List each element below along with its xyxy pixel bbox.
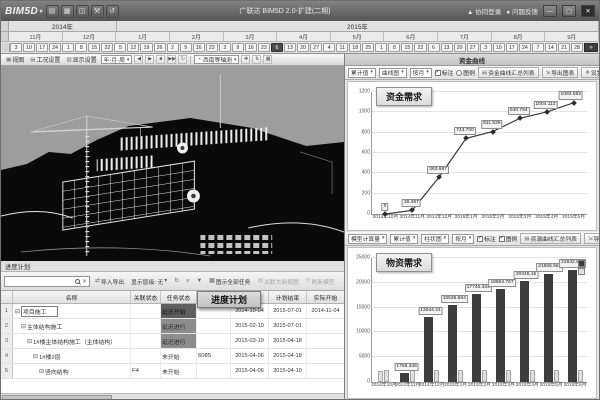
chevron-down-icon: ▾: [164, 278, 167, 284]
cell-link: [131, 319, 161, 333]
legend-swatch-period: [578, 268, 585, 275]
funds-line: [372, 92, 587, 214]
bar-group: [563, 258, 587, 382]
task-name-cell[interactable]: ⊟1#楼主体结构施工（主体结构）: [13, 334, 131, 348]
materials-select-value: 累计值: [393, 234, 410, 243]
bar-cumulative: [472, 294, 481, 382]
x-axis-label: 2015年4月: [535, 216, 558, 221]
timeline-day[interactable]: 1: [375, 43, 387, 52]
bar-group: [372, 258, 396, 382]
timeline-day[interactable]: 19: [140, 43, 152, 52]
date-cell-actual_start: [307, 334, 344, 348]
materials-button-label: 导出图表: [594, 234, 599, 243]
materials-button-1[interactable]: ⇲导出图表: [584, 233, 599, 244]
timeline-day[interactable]: 21: [558, 43, 570, 52]
schedule-button-icon: ▼: [196, 278, 202, 284]
clear-search-icon[interactable]: ✕: [82, 278, 87, 285]
time-scale-select[interactable]: 年-月-周▾: [101, 55, 133, 64]
timeline-month[interactable]: 11月: [9, 32, 63, 41]
bar-cumulative: [544, 274, 553, 382]
task-status-cell[interactable]: 延迟开始: [161, 304, 197, 318]
bar-value-label: 18664.767: [488, 279, 515, 287]
feedback-button[interactable]: ● 问题反馈: [506, 6, 538, 16]
viewer-extra-icons: ✥⇅▦: [241, 55, 272, 64]
playback-icon-4[interactable]: ↻: [178, 55, 187, 64]
y-axis-tick: 0: [367, 380, 370, 385]
schedule-toolbar-button-0[interactable]: ⇄导入导出: [93, 275, 126, 287]
task-status-cell[interactable]: 未开始: [161, 364, 197, 378]
materials-select-0[interactable]: 模型计算量▾: [348, 234, 387, 244]
timeline-day[interactable]: 10: [493, 43, 505, 52]
playback-controls: ◀▶■▶▶↻: [134, 55, 187, 64]
funds-button-icon: ⇲: [546, 70, 551, 76]
task-name-label: 竖向结构: [45, 367, 69, 376]
x-axis-label: 2015年4月: [516, 384, 539, 389]
viewer-button-label: 工况设置: [36, 55, 60, 64]
timeline-day[interactable]: 22: [101, 43, 113, 52]
date-cell-plan_start: 2015-04-06: [231, 364, 269, 378]
funds-toggle-0[interactable]: ✓标注: [435, 68, 454, 77]
schedule-button-icon: ↻: [174, 278, 179, 284]
cell-extra: 6085: [197, 349, 231, 363]
timeline-month[interactable]: 6月: [384, 32, 438, 41]
viewer-button-icon: ▦: [6, 57, 11, 63]
materials-select-3[interactable]: 按月▾: [452, 234, 474, 244]
chevron-down-icon: ▾: [469, 236, 471, 241]
data-point-label: 1004.113: [533, 101, 557, 109]
timeline-day[interactable]: 20: [297, 43, 309, 52]
chevron-down-icon: ▾: [234, 57, 237, 63]
titlebar-tool-icon-3[interactable]: ⚒: [91, 5, 104, 18]
schedule-panel: 进度计划 ✕ ⇄导入导出显示层级: 无▾↻≡▼▦图示全部任务▤关联大纲视图⟳刷新…: [1, 261, 344, 400]
timeline-day[interactable]: 17: [36, 43, 48, 52]
row-number-cell: 3: [1, 334, 13, 348]
viewer-extra-icon-2[interactable]: ▦: [263, 55, 272, 64]
funds-select-value: 曲线图: [382, 68, 399, 77]
table-row[interactable]: 5⊟竖向结构F4未开始2015-04-062015-04-10: [1, 364, 344, 379]
funds-toggle-1[interactable]: 图例: [456, 68, 475, 77]
timeline-stub: [1, 21, 9, 31]
x-axis-label: 2014年10月: [373, 216, 399, 221]
timeline-month[interactable]: 8月: [492, 32, 546, 41]
tree-expander-icon[interactable]: ⊟: [27, 338, 32, 345]
timeline-day[interactable]: 26: [154, 43, 166, 52]
x-axis-label: 2015年2月: [481, 216, 504, 221]
playback-icon-1[interactable]: ▶: [145, 55, 154, 64]
funds-button-2[interactable]: ✲设置: [581, 67, 599, 78]
bar-value-label: 15536.584: [441, 295, 468, 303]
timeline-day[interactable]: 13: [441, 43, 453, 52]
search-box: ✕: [4, 276, 90, 287]
materials-select-value: 模型计算量: [351, 234, 380, 243]
funds-demand-chart: 资金需求 0200400600800100012002014年10月2014年1…: [347, 81, 597, 231]
timeline-day[interactable]: 16: [193, 43, 205, 52]
schedule-toolbar-button-7: ⟳刷新模型: [304, 275, 337, 287]
chevron-down-icon: ▾: [382, 236, 384, 241]
radio-icon[interactable]: [456, 70, 462, 76]
materials-toggle-label: 图例: [506, 234, 518, 243]
schedule-button-label: 刷新模型: [312, 277, 335, 286]
x-axis-label: 2015年1月: [444, 384, 467, 389]
timeline-month[interactable]: 12月: [63, 32, 117, 41]
table-header-row: 名称关联状态任务状态计划开始计划结束实际开始: [1, 291, 344, 304]
checkbox-icon[interactable]: ✓: [435, 70, 441, 76]
date-cell-plan_end: 2015-07-01: [269, 319, 307, 333]
timeline-day[interactable]: 25: [362, 43, 374, 52]
funds-select-1[interactable]: 曲线图▾: [379, 68, 407, 78]
materials-button-label: 资源曲线汇总列表: [531, 234, 577, 243]
bar-period: [554, 370, 559, 382]
toolbar-divider: [190, 56, 191, 64]
task-name-label: 1#楼主体结构施工（主体结构）: [33, 337, 116, 346]
search-icon[interactable]: [75, 279, 80, 284]
timeline-months: 11月12月1月2月3月4月5月6月7月8月9月: [9, 32, 599, 41]
schedule-toolbar-buttons: ⇄导入导出显示层级: 无▾↻≡▼▦图示全部任务▤关联大纲视图⟳刷新模型: [93, 275, 337, 287]
x-axis-label: 2015年6月: [564, 384, 587, 389]
timeline-day[interactable]: 12: [127, 43, 139, 52]
viewer-extra-icon-0[interactable]: ✥: [241, 55, 250, 64]
timeline-day[interactable]: 27: [310, 43, 322, 52]
bar-cumulative: [424, 317, 433, 382]
funds-select-0[interactable]: 累计值▾: [348, 68, 376, 78]
playback-icon-2[interactable]: ■: [156, 55, 165, 64]
task-name-cell[interactable]: ⊟1#楼2层: [13, 349, 131, 363]
chart-title: 物资需求: [376, 253, 432, 272]
y-axis-tick: 25000: [356, 256, 370, 261]
compass-icon: ◔: [197, 57, 201, 63]
cell-link: [131, 304, 161, 318]
task-name-label: 1#楼2层: [39, 352, 61, 361]
horizontal-scrollbar[interactable]: [1, 393, 344, 400]
funds-button-icon: ✲: [585, 70, 590, 76]
task-name-cell[interactable]: ⊟项目施工: [13, 304, 131, 318]
bar-cumulative: [400, 373, 409, 382]
data-point-label: 743.700: [454, 127, 476, 135]
schedule-button-label: 导入导出: [101, 277, 124, 286]
schedule-button-icon: ▤: [257, 278, 262, 284]
curves-panel: 资金曲线 累计值▾曲线图▾按月▾✓标注图例▤资金曲线汇总列表⇲导出图表✲设置 资…: [345, 54, 599, 400]
schedule-button-label: 关联大纲视图: [264, 277, 299, 286]
x-axis-label: 2015年3月: [508, 216, 531, 221]
bar-group: [420, 258, 444, 382]
bar-cumulative: [520, 281, 529, 382]
date-cell-plan_end: 2015-04-10: [269, 364, 307, 378]
timeline-day[interactable]: 13: [284, 43, 296, 52]
timeline-day[interactable]: 16: [245, 43, 257, 52]
task-status-cell[interactable]: 延迟进行: [161, 319, 197, 333]
chevron-down-icon: ▾: [426, 70, 428, 75]
schedule-toolbar-button-4[interactable]: ▼: [194, 275, 204, 287]
y-axis-tick: 20000: [356, 280, 370, 285]
bar-cumulative: [378, 371, 383, 382]
x-axis-label: 2015年1月: [455, 216, 478, 221]
logo-caret-icon: ▾: [39, 8, 42, 15]
timeline-day[interactable]: 24: [519, 43, 531, 52]
row-number-cell: 1: [1, 304, 13, 318]
bar-period: [506, 370, 511, 382]
task-name-label: 项目施工: [21, 306, 58, 317]
y-axis-tick: 0: [367, 212, 370, 217]
x-axis-label: 2015年2月: [468, 384, 491, 389]
timeline-day[interactable]: 3: [480, 43, 492, 52]
titlebar-tool-icon-0[interactable]: ▤: [46, 5, 59, 18]
timeline-day[interactable]: 2: [167, 43, 179, 52]
tree-expander-icon[interactable]: ⊟: [39, 368, 44, 375]
funds-button-label: 导出图表: [551, 68, 574, 77]
task-status-cell[interactable]: 未开始: [161, 349, 197, 363]
timeline-day[interactable]: 11: [336, 43, 348, 52]
timeline-day[interactable]: 8: [75, 43, 87, 52]
materials-select-2[interactable]: 柱状图▾: [421, 234, 449, 244]
viewer-button-2[interactable]: ▥显示设置: [64, 55, 98, 65]
column-header-link[interactable]: 关联状态: [131, 291, 161, 303]
bar-cumulative: [448, 305, 457, 382]
timeline-day[interactable]: 7: [532, 43, 544, 52]
data-point-label: 1093.592: [559, 91, 583, 99]
bar-cumulative: [568, 270, 577, 382]
date-cell-actual_start: [307, 349, 344, 363]
row-number-cell: 5: [1, 364, 13, 378]
schedule-toolbar-button-3[interactable]: ≡: [184, 275, 191, 287]
date-cell-actual_start: [307, 364, 344, 378]
chevron-down-icon: ▾: [370, 70, 372, 75]
schedule-toolbar-button-1[interactable]: 显示层级: 无▾: [129, 275, 169, 287]
x-axis-label: 2015年5月: [540, 384, 563, 389]
tree-expander-icon[interactable]: ⊟: [15, 308, 20, 315]
materials-button-icon: ▤: [524, 236, 529, 242]
viewer-button-0[interactable]: ▦视图: [4, 55, 26, 65]
cell-link: [131, 349, 161, 363]
funds-toggle-label: 标注: [442, 68, 454, 77]
timeline-day[interactable]: 20: [454, 43, 466, 52]
chart-legend: [578, 260, 585, 275]
title-bar: BIM5D ▾ ▤▦◫⚒↺ 广联达 BIM5D 2.0-扩建(二期) ▲ 协同登…: [1, 1, 599, 21]
task-name-label: 主体结构施工: [27, 322, 62, 331]
column-header-no[interactable]: [1, 291, 13, 303]
table-row[interactable]: 3⊟1#楼主体结构施工（主体结构）延迟进行2015-03-192015-04-1…: [1, 334, 344, 349]
schedule-toolbar-button-2[interactable]: ↻: [172, 275, 181, 287]
cell-extra: [197, 364, 231, 378]
viewer-button-label: 显示设置: [73, 55, 97, 64]
x-axis-label: 2014年12月: [426, 216, 452, 221]
funds-toggle-label: 图例: [463, 68, 475, 77]
timeline-day[interactable]: 23: [258, 43, 270, 52]
cell-link: F4: [131, 364, 161, 378]
timeline-day[interactable]: 17: [506, 43, 518, 52]
materials-select-value: 按月: [455, 234, 467, 243]
close-button[interactable]: ✕: [581, 5, 595, 17]
schedule-button-icon: ≡: [186, 278, 189, 284]
bar-period: [410, 370, 415, 382]
timeline-day[interactable]: 1: [62, 43, 74, 52]
view-mode-value: 西南等轴测: [203, 55, 232, 64]
table-row[interactable]: 2⊟主体结构施工延迟进行2015-02-102015-07-01: [1, 319, 344, 334]
y-axis-tick: 1000: [359, 110, 370, 115]
bar-group: [444, 258, 468, 382]
app-logo[interactable]: BIM5D ▾: [5, 6, 43, 17]
chart-title: 资金需求: [376, 87, 432, 106]
column-header-plan_end[interactable]: 计划结束: [269, 291, 307, 303]
timeline-month[interactable]: 7月: [438, 32, 492, 41]
viewport-3d[interactable]: [1, 66, 344, 261]
timeline-day[interactable]: 18: [349, 43, 361, 52]
playback-icon-3[interactable]: ▶▶: [167, 55, 176, 64]
titlebar-tool-icon-1[interactable]: ▦: [61, 5, 74, 18]
row-number-cell: 2: [1, 319, 13, 333]
row-number-cell: 4: [1, 349, 13, 363]
schedule-toolbar-button-5[interactable]: ▦图示全部任务: [207, 275, 252, 287]
timeline-month[interactable]: 9月: [545, 32, 599, 41]
funds-select-value: 按月: [413, 68, 425, 77]
timeline-day[interactable]: 3: [10, 43, 22, 52]
date-cell-plan_end: 2015-04-18: [269, 349, 307, 363]
date-cell-plan_start: 2015-03-19: [231, 334, 269, 348]
materials-toolbar: 模型计算量▾累计值▾柱状图▾按月▾✓标注✓图例▤资源曲线汇总列表⇲导出图表: [345, 232, 599, 246]
timeline-day[interactable]: 6: [271, 43, 283, 52]
cell-link: [131, 334, 161, 348]
search-input[interactable]: [7, 278, 73, 284]
task-name-cell[interactable]: ⊟竖向结构: [13, 364, 131, 378]
date-cell-plan_end: 2015-07-01: [269, 304, 307, 318]
timeline-month[interactable]: 5月: [331, 32, 385, 41]
x-axis-label: 2014年11月: [395, 384, 420, 389]
materials-button-icon: ⇲: [588, 236, 593, 242]
data-point-label: 0: [382, 203, 389, 211]
materials-toggle-0[interactable]: ✓标注: [477, 234, 496, 243]
timeline-scroll-end[interactable]: »: [584, 43, 598, 52]
timeline-day[interactable]: 23: [206, 43, 218, 52]
chevron-down-icon: ▾: [401, 70, 403, 75]
y-axis-tick: 200: [362, 191, 370, 196]
materials-button-0[interactable]: ▤资源曲线汇总列表: [520, 233, 581, 244]
timeline-day[interactable]: 28: [571, 43, 583, 52]
bar-value-label: 1768.345: [394, 363, 418, 371]
cell-extra: [197, 334, 231, 348]
timeline-day[interactable]: 2: [219, 43, 231, 52]
timeline-years: 2014年2015年: [9, 21, 599, 31]
y-axis-tick: 1200: [359, 90, 370, 95]
materials-select-1[interactable]: 累计值▾: [390, 234, 418, 244]
timeline-day[interactable]: 5: [114, 43, 126, 52]
column-header-actual_start[interactable]: 实际开始: [307, 291, 344, 303]
x-axis-label: 2014年12月: [419, 384, 445, 389]
timeline-day[interactable]: 9: [232, 43, 244, 52]
timeline-day[interactable]: 22: [414, 43, 426, 52]
materials-select-value: 柱状图: [424, 234, 441, 243]
timeline-year: 2014年: [9, 21, 117, 31]
timeline-month[interactable]: 4月: [277, 32, 331, 41]
timeline-day[interactable]: 10: [23, 43, 35, 52]
data-point-label: 940.794: [508, 107, 530, 115]
x-axis-label: 2015年5月: [562, 216, 585, 221]
materials-toggle-1[interactable]: ✓图例: [499, 234, 518, 243]
timeline-day[interactable]: 9: [180, 43, 192, 52]
date-cell-plan_start: 2015-02-10: [231, 319, 269, 333]
funds-button-label: 资金曲线汇总列表: [488, 68, 534, 77]
legend-swatch-cumulative: [578, 260, 585, 267]
bar-value-label: 13044.41: [418, 307, 442, 315]
task-status-cell[interactable]: 延迟进行: [161, 334, 197, 348]
timeline-month[interactable]: 3月: [224, 32, 278, 41]
time-scale-value: 年-月-周: [104, 55, 125, 64]
titlebar-tool-icon-4[interactable]: ↺: [106, 5, 119, 18]
bar-group: [539, 258, 563, 382]
y-axis-tick: 10000: [356, 330, 370, 335]
data-point-label: 36.487: [402, 199, 421, 207]
viewer-extra-icon-1[interactable]: ⇅: [252, 55, 261, 64]
y-axis-tick: 400: [362, 171, 370, 176]
bar-group: [468, 258, 492, 382]
timeline-day[interactable]: 24: [49, 43, 61, 52]
tree-expander-icon[interactable]: ⊟: [33, 353, 38, 360]
tree-expander-icon[interactable]: ⊟: [21, 323, 26, 330]
task-name-cell[interactable]: ⊟主体结构施工: [13, 319, 131, 333]
viewer-button-1[interactable]: ▤工况设置: [28, 55, 62, 65]
viewport-panel: ▦视图▤工况设置▥显示设置 年-月-周▾ ◀▶■▶▶↻ ◔ 西南等轴测▾ ✥⇅▦: [1, 54, 345, 400]
funds-select-2[interactable]: 按月▾: [410, 68, 432, 78]
y-axis-tick: 5000: [359, 355, 370, 360]
data-point-label: 363.687: [427, 166, 449, 174]
titlebar-icons: ▤▦◫⚒↺: [46, 5, 119, 18]
timeline-day[interactable]: 8: [388, 43, 400, 52]
checkbox-icon[interactable]: ✓: [477, 236, 483, 242]
timeline-month[interactable]: 1月: [116, 32, 170, 41]
viewer-toolbar: ▦视图▤工况设置▥显示设置 年-月-周▾ ◀▶■▶▶↻ ◔ 西南等轴测▾ ✥⇅▦: [1, 54, 344, 66]
bar-cumulative: [496, 289, 505, 382]
timeline-day[interactable]: 27: [467, 43, 479, 52]
schedule-button-icon: ⟳: [306, 278, 311, 284]
x-axis-label: 2015年3月: [492, 384, 515, 389]
titlebar-tool-icon-2[interactable]: ◫: [76, 5, 89, 18]
timeline-day[interactable]: 15: [401, 43, 413, 52]
checkbox-icon[interactable]: ✓: [499, 236, 505, 242]
titlebar-right: ▲ 协同登录 ● 问题反馈 — ▢ ✕: [467, 5, 595, 17]
funds-button-0[interactable]: ▤资金曲线汇总列表: [478, 67, 539, 78]
timeline-day[interactable]: 6: [428, 43, 440, 52]
minimize-button[interactable]: —: [543, 5, 557, 17]
table-row[interactable]: 1⊟项目施工延迟开始2014-10-042015-07-012014-11-04: [1, 304, 344, 319]
column-header-status[interactable]: 任务状态: [161, 291, 197, 303]
timeline-day[interactable]: 4: [323, 43, 335, 52]
playback-icon-0[interactable]: ◀: [134, 55, 143, 64]
funds-button-1[interactable]: ⇲导出图表: [542, 67, 579, 78]
timeline-day[interactable]: 14: [545, 43, 557, 52]
scrollbar-thumb[interactable]: [2, 395, 112, 400]
timeline-month[interactable]: 2月: [170, 32, 224, 41]
date-cell-actual_start: [307, 319, 344, 333]
viewer-button-label: 视图: [12, 55, 24, 64]
table-row[interactable]: 4⊟1#楼2层未开始60852015-04-062015-04-18: [1, 349, 344, 364]
date-cell-actual_start: 2014-11-04: [307, 304, 344, 318]
y-axis-tick: 600: [362, 151, 370, 156]
x-axis-label: 2014年10月: [371, 384, 397, 389]
column-header-name[interactable]: 名称: [13, 291, 131, 303]
timeline-days: 3101724181522512192629162329162361320274…: [10, 43, 598, 52]
line-plot-area: 0200400600800100012002014年10月2014年11月201…: [371, 92, 587, 215]
x-axis-label: 2014年11月: [400, 216, 425, 221]
view-mode-select[interactable]: ◔ 西南等轴测▾: [194, 55, 239, 64]
bar-plot-area: 05000100001500020000250002014年10月2014年11…: [371, 258, 587, 383]
schedule-button-label: 图示全部任务: [216, 277, 251, 286]
login-button[interactable]: ▲ 协同登录: [467, 6, 501, 16]
funds-button-label: 设置: [591, 68, 599, 77]
cell-extra: [197, 319, 231, 333]
schedule-toolbar-button-6: ▤关联大纲视图: [255, 275, 300, 287]
bar-value-label: 20346.15: [514, 271, 538, 279]
maximize-button[interactable]: ▢: [562, 5, 576, 17]
schedule-tab-floating[interactable]: 进度计划: [197, 291, 261, 308]
timeline-day[interactable]: 15: [88, 43, 100, 52]
